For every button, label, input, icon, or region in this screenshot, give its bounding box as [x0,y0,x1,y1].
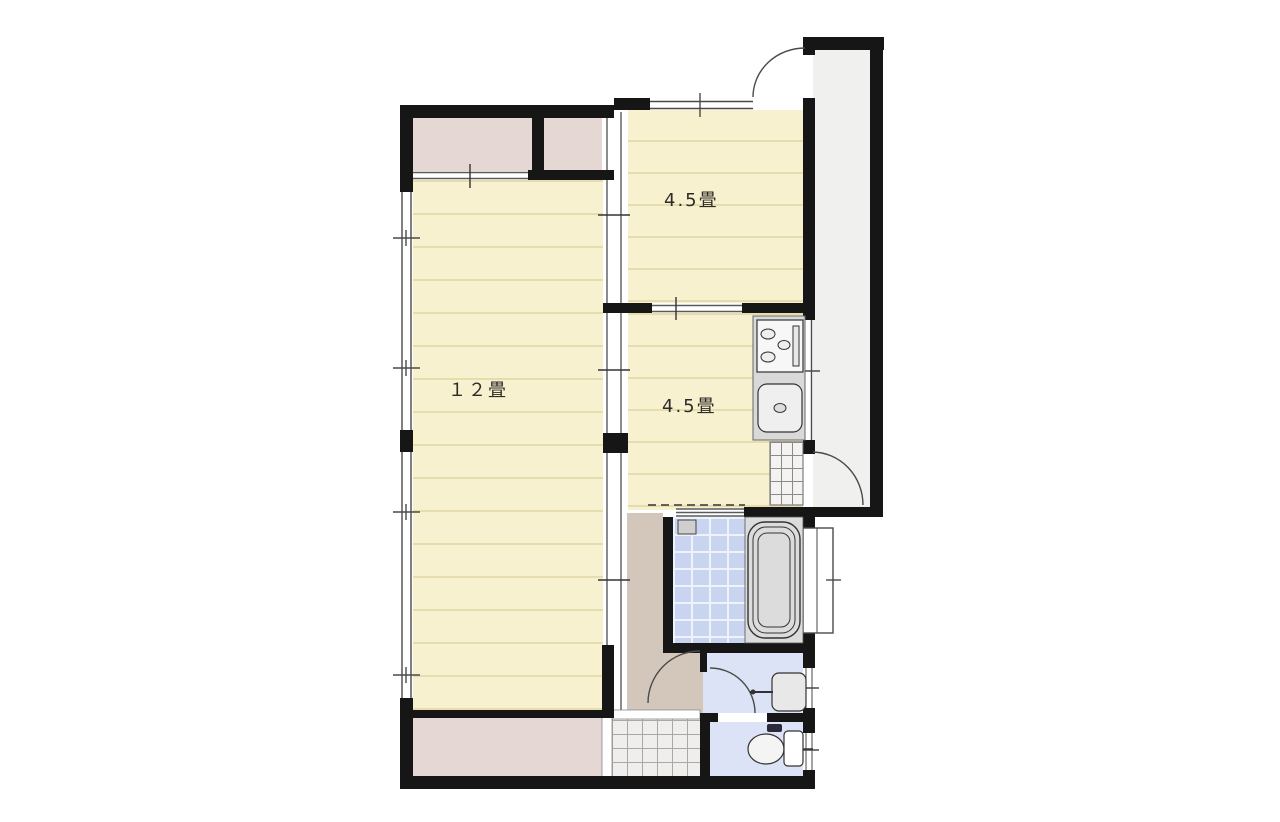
entrance-step-edge [608,710,700,719]
stove-icon [757,320,803,372]
entrance-tile-grid [612,718,700,776]
front-door-arc [753,48,805,97]
bathroom-tile-grid [673,517,745,643]
bedroom-label: 4.5畳 [664,186,719,212]
exterior-corridor [813,50,870,507]
living-tatami-lines [412,180,603,712]
kitchen-sink-icon [758,384,802,432]
entrance-side-door [602,712,612,778]
living-room-label: １２畳 [448,376,508,402]
kitchen-door-step-grid [770,442,803,505]
closet-upper-right [544,118,602,172]
kitchen-label: 4.5畳 [662,392,717,418]
closet-bottom [413,718,603,776]
shower-box-icon [678,520,696,534]
floor-plan: １２畳 4.5畳 4.5畳 [0,0,1280,822]
bathtub-icon [748,522,800,638]
closet-upper-left [413,118,532,172]
floor-plan-drawing [0,0,1280,822]
